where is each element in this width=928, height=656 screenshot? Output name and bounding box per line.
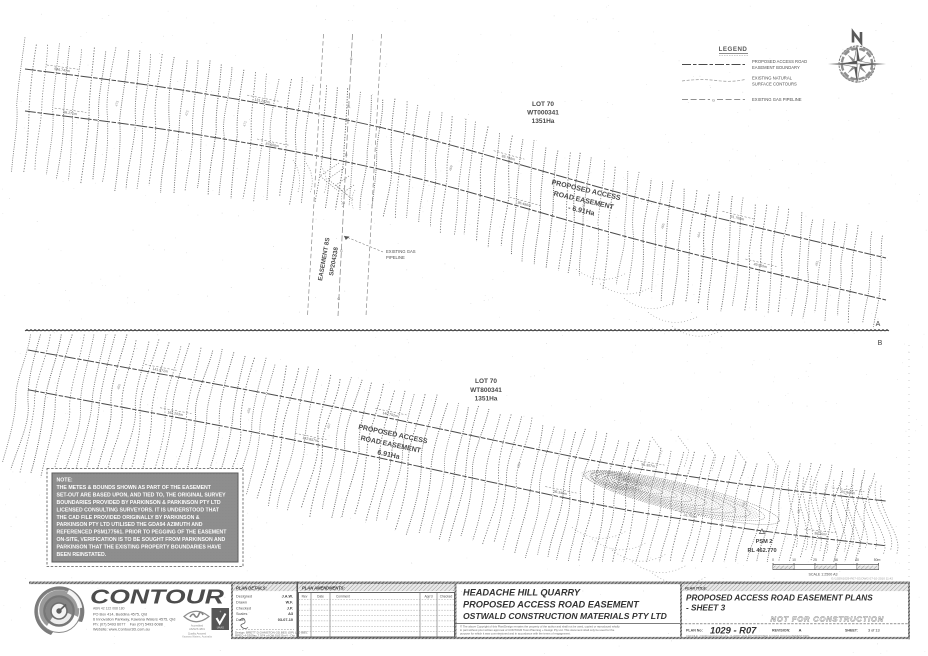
svg-text:purpose for which it was commi: purpose for which it was commissioned an… — [460, 632, 571, 636]
svg-text:LOT 70: LOT 70 — [532, 101, 554, 108]
svg-text:RPEQ 4-5309ac,7.974 of Qld,SLE: RPEQ 4-5309ac,7.974 of Qld,SLE Env'l - D… — [235, 634, 296, 638]
svg-text:BEEN REINSTATED.: BEEN REINSTATED. — [57, 552, 107, 558]
svg-text:A: A — [799, 628, 802, 633]
svg-text:LICENSED CONSULTING SURVEYORS.: LICENSED CONSULTING SURVEYORS. IT IS UND… — [57, 507, 220, 513]
svg-text:36: 36 — [834, 558, 838, 562]
svg-text:PO Box 414, Buddina 4575, Qld: PO Box 414, Buddina 4575, Qld — [93, 613, 147, 617]
svg-text:Drawn: Drawn — [236, 600, 247, 604]
svg-text:G: G — [345, 153, 348, 157]
svg-text:THE METES & BOUNDS SHOWN AS PA: THE METES & BOUNDS SHOWN AS PART OF THE … — [57, 485, 212, 491]
svg-text:25: 25 — [813, 558, 817, 562]
svg-text:Ph: (07) 5493 6077 Fax (07): Ph: (07) 5493 6077 Fax (07) 5493 6088 — [93, 623, 163, 627]
svg-text:1029 - R07: 1029 - R07 — [710, 625, 757, 636]
svg-text:SCALE 1:2500 A3: SCALE 1:2500 A3 — [809, 573, 838, 577]
svg-text:THE CAD FILE PROVIDED ORIGINAL: THE CAD FILE PROVIDED ORIGINALLY BY PARK… — [57, 515, 200, 521]
svg-text:EXISTING NATURAL: EXISTING NATURAL — [752, 76, 793, 81]
svg-text:PARKINSON PTY LTD UTILISED THE: PARKINSON PTY LTD UTILISED THE GDA94 AZI… — [57, 522, 203, 528]
svg-text:6 Innovation Parkway, Kawana W: 6 Innovation Parkway, Kawana Waters 4575… — [93, 618, 175, 622]
svg-text:G: G — [712, 98, 715, 102]
svg-text:AS/NZS 4801: AS/NZS 4801 — [189, 627, 205, 631]
svg-text:UKAS: UKAS — [217, 625, 224, 629]
svg-text:Quality Assured: Quality Assured — [188, 631, 207, 635]
svg-text:WT000341: WT000341 — [527, 110, 559, 117]
svg-text:CONTOUR: CONTOUR — [90, 587, 225, 609]
svg-text:NOTE:: NOTE: — [57, 478, 73, 484]
svg-text:PLAN DETAILS:: PLAN DETAILS: — [236, 586, 267, 591]
svg-text:B: B — [878, 340, 883, 347]
svg-text:RL 462.770: RL 462.770 — [747, 548, 776, 554]
svg-text:- SHEET 3: - SHEET 3 — [686, 604, 726, 613]
svg-text:Checked: Checked — [440, 594, 453, 598]
svg-text:Scales: Scales — [236, 612, 247, 616]
svg-text:1351Ha: 1351Ha — [532, 118, 555, 125]
svg-text:1351Ha: 1351Ha — [475, 396, 498, 403]
svg-text:BOUNDARIES PROVIDED BY PARKINS: BOUNDARIES PROVIDED BY PARKINSON & PARKI… — [57, 500, 221, 506]
svg-text:SHEET:: SHEET: — [845, 629, 858, 633]
svg-text:Rev: Rev — [302, 594, 308, 598]
svg-text:PLAN TITLE:: PLAN TITLE: — [685, 586, 708, 590]
svg-text:EXISTING GAS: EXISTING GAS — [386, 249, 416, 254]
svg-text:SET-OUT ARE BASED UPON, AND TI: SET-OUT ARE BASED UPON, AND TIED TO, THE… — [57, 492, 227, 498]
svg-text:REVISION:: REVISION: — [772, 629, 790, 633]
svg-text:J.P.: J.P. — [287, 606, 293, 610]
svg-text:HEADACHE HILL QUARRY: HEADACHE HILL QUARRY — [463, 588, 581, 598]
svg-text:03-07-10: 03-07-10 — [278, 618, 293, 622]
svg-text:G: G — [347, 105, 350, 109]
svg-text:J.A.W.: J.A.W. — [282, 595, 293, 599]
svg-text:EXISTING GAS PIPELINE: EXISTING GAS PIPELINE — [752, 97, 802, 102]
svg-text:Designed: Designed — [236, 595, 252, 599]
svg-text:50m: 50m — [874, 558, 881, 562]
svg-text:App'd: App'd — [424, 594, 432, 598]
svg-text:G: G — [337, 297, 340, 301]
svg-text:PSM 2: PSM 2 — [756, 539, 773, 545]
svg-text:ABN 42 122 068 180: ABN 42 122 068 180 — [93, 607, 125, 611]
svg-text:WT800341: WT800341 — [470, 387, 502, 394]
svg-text:A: A — [876, 321, 881, 328]
svg-text:PIPELINE: PIPELINE — [386, 255, 405, 260]
svg-text:A3: A3 — [288, 612, 293, 616]
svg-text:Checked: Checked — [236, 606, 251, 610]
svg-text:PARKINSON THAT THE EXISTING PR: PARKINSON THAT THE EXISTING PROPERTY BOU… — [57, 545, 222, 551]
svg-text:Accredited: Accredited — [191, 624, 204, 628]
svg-text:SURFACE CONTOURS: SURFACE CONTOURS — [752, 82, 797, 87]
svg-text:G: G — [350, 57, 353, 61]
svg-text:REFERENCED PSM177561. PRIOR TO: REFERENCED PSM177561. PRIOR TO PEGGING O… — [57, 530, 228, 536]
svg-text:Website: www.Contour3D.com.au: Website: www.Contour3D.com.au — [93, 628, 150, 632]
svg-text:Kawana Waters, Australia: Kawana Waters, Australia — [182, 635, 212, 639]
svg-text:ON-SITE, VERIFICATION IS TO BE: ON-SITE, VERIFICATION IS TO BE SOUGHT FR… — [57, 537, 226, 543]
svg-text:W.F.: W.F. — [286, 600, 293, 604]
svg-text:LOT 70: LOT 70 — [475, 378, 497, 385]
svg-text:PROPOSED ACCESS ROAD: PROPOSED ACCESS ROAD — [752, 59, 807, 64]
svg-text:PROPOSED ACCESS ROAD EASEMENT: PROPOSED ACCESS ROAD EASEMENT PLANS — [686, 594, 873, 603]
svg-text:CAD FILE: J:\1029 HEADACHE HIL: CAD FILE: J:\1029 HEADACHE HILL QUARRY\1… — [686, 634, 809, 638]
svg-text:PROPOSED ACCESS ROAD EASEMENT: PROPOSED ACCESS ROAD EASEMENT — [463, 600, 640, 610]
svg-text:10: 10 — [792, 558, 796, 562]
svg-text:G:\1029\1029-R07-S3.DWG 07-10: G:\1029\1029-R07-S3.DWG 07-10-2010 11:42 — [831, 577, 893, 581]
svg-text:OSTWALD CONSTRUCTION MATERIALS: OSTWALD CONSTRUCTION MATERIALS PTY LTD — [463, 611, 667, 621]
svg-text:40: 40 — [855, 558, 859, 562]
svg-text:G: G — [340, 249, 343, 253]
svg-text:0: 0 — [772, 558, 774, 562]
svg-text:3 of 13: 3 of 13 — [868, 629, 880, 633]
svg-text:NOT FOR CONSTRUCTION: NOT FOR CONSTRUCTION — [771, 615, 884, 624]
svg-text:Date: Date — [317, 594, 324, 598]
svg-text:PLAN AMENDMENTS:: PLAN AMENDMENTS: — [302, 586, 345, 591]
svg-text:EASEMENT BOUNDARY: EASEMENT BOUNDARY — [752, 65, 800, 70]
svg-text:PLAN No:: PLAN No: — [686, 629, 703, 633]
svg-text:Comment: Comment — [336, 594, 350, 598]
svg-text:LEGEND: LEGEND — [719, 46, 748, 53]
svg-text:G: G — [342, 201, 345, 205]
